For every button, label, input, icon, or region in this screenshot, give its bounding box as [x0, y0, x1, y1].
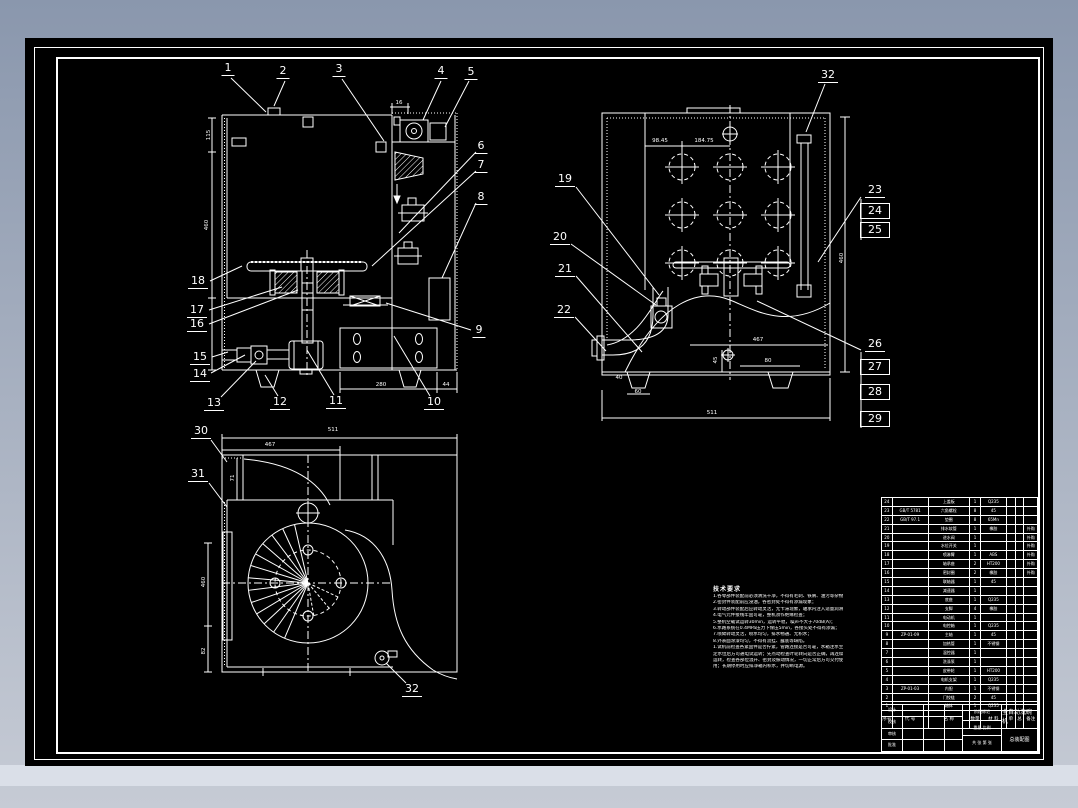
bom-cell-no: 14 [882, 587, 893, 595]
bom-cell-no: 16 [882, 569, 893, 577]
bom-cell-w1 [1007, 534, 1016, 542]
bom-cell-rem [1024, 649, 1037, 657]
parts-list-row: 14减速器1 [882, 587, 1037, 596]
parts-list-row: 22GB/T 97.1垫圈865Mn [882, 516, 1037, 525]
bom-cell-mat [981, 658, 1007, 666]
bom-cell-rem: 外购 [1024, 560, 1037, 568]
bom-cell-name: 底座 [929, 596, 971, 604]
title-block-cell: 校核 [882, 717, 903, 728]
bom-cell-rem: 外购 [1024, 542, 1037, 550]
callout-10: 10 [424, 396, 444, 410]
bom-cell-no: 24 [882, 498, 893, 506]
title-block-cell: 设计 [882, 705, 903, 716]
bom-cell-w1 [1007, 560, 1016, 568]
bom-cell-no: 21 [882, 525, 893, 533]
dimension-text: 98.45 [652, 138, 668, 144]
bom-cell-mat: Q235 [981, 498, 1007, 506]
parts-list-row: 12支脚4橡胶 [882, 605, 1037, 614]
front-view [208, 103, 457, 393]
leader-line-19 [576, 187, 659, 295]
dimension-text: 511 [328, 427, 339, 433]
title-block-row: 批准 [882, 740, 962, 751]
leader-line-30 [211, 440, 227, 462]
dimension-text: 16 [396, 100, 403, 106]
leader-line-11 [307, 350, 334, 395]
leader-line-5 [445, 81, 469, 127]
bom-cell-qty: 1 [970, 534, 981, 542]
bom-cell-w1 [1007, 587, 1016, 595]
callout-22: 22 [554, 304, 574, 318]
bom-cell-no: 19 [882, 542, 893, 550]
bom-cell-code: GB/T 5781 [893, 507, 929, 515]
bom-cell-w2 [1016, 498, 1025, 506]
bom-cell-qty: 8 [970, 507, 981, 515]
callout-20: 20 [550, 231, 570, 245]
leader-line-3 [342, 79, 384, 141]
bom-cell-no: 11 [882, 614, 893, 622]
bom-cell-name: 排水软管 [929, 525, 971, 533]
bom-cell-mat: ABS [981, 551, 1007, 559]
dimension-text: 115 [206, 130, 212, 141]
bom-cell-code [893, 658, 929, 666]
title-block-row: 设计 [882, 705, 962, 717]
bom-cell-rem [1024, 587, 1037, 595]
bom-cell-rem [1024, 676, 1037, 684]
bom-cell-w2 [1016, 605, 1025, 613]
bom-cell-code [893, 649, 929, 657]
leader-line-4 [423, 81, 441, 120]
bom-cell-rem: 外购 [1024, 551, 1037, 559]
bom-cell-w1 [1007, 542, 1016, 550]
bom-cell-mat [981, 542, 1007, 550]
bom-cell-qty: 1 [970, 551, 981, 559]
bom-cell-code [893, 605, 929, 613]
callout-31: 31 [188, 468, 208, 482]
bom-cell-w1 [1007, 516, 1016, 524]
parts-list-table: 24上盖板1Q23523GB/T 5781六角螺栓84522GB/T 97.1垫… [881, 497, 1038, 729]
bom-cell-mat: 45 [981, 631, 1007, 639]
dimension-text: 460 [201, 577, 207, 588]
bom-cell-w1 [1007, 676, 1016, 684]
bom-cell-code [893, 694, 929, 702]
dimension-text: 60 [635, 389, 642, 395]
callout-23: 23 [865, 184, 885, 198]
leader-line-32 [386, 663, 406, 683]
bom-cell-no: 12 [882, 605, 893, 613]
bom-cell-no: 22 [882, 516, 893, 524]
bom-cell-qty: 2 [970, 694, 981, 702]
bom-cell-w2 [1016, 578, 1025, 586]
title-block-cell [945, 717, 965, 728]
dimension-text: 467 [753, 337, 764, 343]
side-view [592, 105, 861, 428]
callout-3: 3 [333, 63, 346, 77]
bom-cell-rem: 外购 [1024, 534, 1037, 542]
bom-cell-code [893, 596, 929, 604]
bom-cell-w1 [1007, 605, 1016, 613]
bom-cell-code [893, 578, 929, 586]
bom-cell-code [893, 587, 929, 595]
bom-cell-name: 电机支架 [929, 676, 971, 684]
title-block-middle: 阶段标记 重量 比例 共 张 第 张 [963, 705, 1002, 751]
title-block-name-area: 全自动洗碗机 总装配图 [1002, 705, 1037, 751]
callout-19: 19 [555, 173, 575, 187]
bom-cell-rem [1024, 694, 1037, 702]
callout-9: 9 [473, 324, 486, 338]
bom-cell-w1 [1007, 667, 1016, 675]
title-block-cell [924, 729, 945, 740]
leader-line-31 [209, 483, 227, 507]
parts-list-row: 9ZP-01-09主轴145 [882, 631, 1037, 640]
title-block: 设计校核审核批准 阶段标记 重量 比例 共 张 第 张 全自动洗碗机 总装配图 [881, 704, 1038, 752]
callout-7: 7 [475, 159, 488, 173]
title-block-cell [945, 729, 965, 740]
bom-cell-w2 [1016, 667, 1025, 675]
bom-cell-mat: 橡胶 [981, 525, 1007, 533]
bom-cell-qty: 1 [970, 525, 981, 533]
bom-cell-qty: 4 [970, 605, 981, 613]
parts-list-row: 23GB/T 5781六角螺栓845 [882, 507, 1037, 516]
bom-cell-qty: 1 [970, 498, 981, 506]
bom-cell-name: 联轴器 [929, 578, 971, 586]
bom-cell-name: 喷淋臂 [929, 551, 971, 559]
bom-cell-no: 4 [882, 676, 893, 684]
parts-list-row: 3ZP-01-03内胆1不锈钢 [882, 685, 1037, 694]
parts-list-row: 20进水阀1外购 [882, 534, 1037, 543]
title-block-cell [924, 740, 945, 751]
bom-cell-code: ZP-01-09 [893, 631, 929, 639]
callout-12: 12 [270, 396, 290, 410]
bom-cell-w1 [1007, 685, 1016, 693]
parts-list-row: 15联轴器145 [882, 578, 1037, 587]
bom-cell-qty: 8 [970, 516, 981, 524]
parts-list-row: 21排水软管1橡胶外购 [882, 525, 1037, 534]
bom-cell-code [893, 667, 929, 675]
bom-cell-name: 垫圈 [929, 516, 971, 524]
bom-cell-rem [1024, 498, 1037, 506]
bom-cell-rem: 外购 [1024, 569, 1037, 577]
callout-14: 14 [190, 368, 210, 382]
dimension-text: 280 [376, 382, 387, 388]
drawing-name-line1: 全自动洗碗机 [1002, 705, 1037, 729]
bom-cell-name: 密封圈 [929, 569, 971, 577]
technical-notes: 技术要求 1.各零部件装配前必须清洗干净，不得有毛刺、铁屑、油污等杂物；2.密封… [713, 584, 843, 696]
notes-line: 用；长期停用时应排净箱内积水，并切断电源。 [713, 664, 843, 670]
bom-cell-name: 洗涤泵 [929, 658, 971, 666]
parts-list-row: 17轴承座2HT200外购 [882, 560, 1037, 569]
bom-cell-no: 8 [882, 640, 893, 648]
callout-21: 21 [555, 263, 575, 277]
callout-24: 24 [860, 203, 890, 219]
bom-cell-no: 17 [882, 560, 893, 568]
callout-4: 4 [435, 65, 448, 79]
bom-cell-qty: 1 [970, 685, 981, 693]
bom-cell-name: 电动机 [929, 614, 971, 622]
bom-cell-w1 [1007, 658, 1016, 666]
title-block-cell [945, 740, 965, 751]
bom-cell-no: 20 [882, 534, 893, 542]
callout-30: 30 [191, 425, 211, 439]
bom-cell-w2 [1016, 622, 1025, 630]
bom-cell-rem [1024, 614, 1037, 622]
title-block-cell [903, 729, 924, 740]
weight-scale-labels: 重量 比例 [963, 721, 1001, 737]
bom-cell-w2 [1016, 560, 1025, 568]
bom-cell-w2 [1016, 525, 1025, 533]
dimension-text: 184.75 [694, 138, 713, 144]
dimension-text: 82 [201, 648, 207, 655]
bom-cell-rem [1024, 605, 1037, 613]
title-block-cell [924, 717, 945, 728]
leader-line-2 [274, 81, 285, 106]
bom-cell-name: 门铰链 [929, 694, 971, 702]
callout-2: 2 [277, 65, 290, 79]
bom-cell-qty: 1 [970, 676, 981, 684]
bom-cell-qty: 1 [970, 658, 981, 666]
bom-cell-no: 7 [882, 649, 893, 657]
bom-cell-code [893, 534, 929, 542]
bom-cell-name: 内胆 [929, 685, 971, 693]
bom-cell-mat: 45 [981, 578, 1007, 586]
bom-cell-w2 [1016, 596, 1025, 604]
bom-cell-w1 [1007, 596, 1016, 604]
dimension-text: 80 [765, 358, 772, 364]
bom-cell-mat: 45 [981, 694, 1007, 702]
bom-cell-rem [1024, 685, 1037, 693]
title-block-row: 校核 [882, 717, 962, 729]
bom-cell-rem [1024, 596, 1037, 604]
bom-cell-mat: 45 [981, 507, 1007, 515]
parts-list-row: 13底座1Q235 [882, 596, 1037, 605]
bom-cell-mat: HT200 [981, 560, 1007, 568]
bom-cell-w2 [1016, 694, 1025, 702]
bom-cell-w2 [1016, 685, 1025, 693]
bom-cell-mat: 橡胶 [981, 605, 1007, 613]
bom-cell-name: 轴承座 [929, 560, 971, 568]
callout-5: 5 [465, 66, 478, 80]
drawing-name-line2: 总装配图 [1002, 729, 1037, 752]
bom-cell-w2 [1016, 649, 1025, 657]
bom-cell-w1 [1007, 569, 1016, 577]
leader-line-32 [806, 84, 825, 132]
bom-cell-rem [1024, 516, 1037, 524]
dimension-text: 44 [443, 382, 450, 388]
bom-cell-w2 [1016, 631, 1025, 639]
parts-list-row: 6洗涤泵1 [882, 658, 1037, 667]
bom-cell-code [893, 525, 929, 533]
title-block-cell [903, 705, 924, 716]
bom-cell-name: 温控器 [929, 649, 971, 657]
bom-cell-mat: 橡胶 [981, 569, 1007, 577]
bom-cell-w2 [1016, 658, 1025, 666]
parts-list-row: 10电控箱1Q235 [882, 622, 1037, 631]
title-block-cell: 批准 [882, 740, 903, 751]
dimension-text: 45 [713, 357, 719, 364]
bom-cell-rem [1024, 667, 1037, 675]
title-block-signature-grid: 设计校核审核批准 [882, 705, 963, 751]
bom-cell-code [893, 640, 929, 648]
bom-cell-w1 [1007, 622, 1016, 630]
callout-32: 32 [402, 683, 422, 697]
bom-cell-w1 [1007, 649, 1016, 657]
bom-cell-code [893, 614, 929, 622]
callout-15: 15 [190, 351, 210, 365]
bom-cell-no: 3 [882, 685, 893, 693]
dimension-text: 467 [265, 442, 276, 448]
bom-cell-qty: 1 [970, 614, 981, 622]
bom-cell-w1 [1007, 694, 1016, 702]
bom-cell-mat: Q235 [981, 676, 1007, 684]
bom-cell-code: ZP-01-03 [893, 685, 929, 693]
bom-cell-w1 [1007, 507, 1016, 515]
bom-cell-qty: 1 [970, 649, 981, 657]
bom-cell-qty: 1 [970, 640, 981, 648]
top-view [204, 434, 457, 679]
parts-list-row: 2门铰链245 [882, 694, 1037, 703]
bom-cell-code [893, 560, 929, 568]
bom-cell-qty: 1 [970, 542, 981, 550]
bom-cell-mat: 不锈钢 [981, 685, 1007, 693]
bom-cell-rem [1024, 507, 1037, 515]
bom-cell-w2 [1016, 587, 1025, 595]
bom-cell-name: 皮带轮 [929, 667, 971, 675]
callout-6: 6 [475, 140, 488, 154]
callout-29: 29 [860, 411, 890, 427]
callout-18: 18 [188, 275, 208, 289]
bom-cell-qty: 1 [970, 596, 981, 604]
dimension-text: 511 [707, 410, 718, 416]
parts-list-row: 11电动机1 [882, 614, 1037, 623]
title-block-cell: 审核 [882, 729, 903, 740]
callout-32: 32 [818, 69, 838, 83]
callout-13: 13 [204, 397, 224, 411]
parts-list-row: 19水位开关1外购 [882, 542, 1037, 551]
parts-list-row: 16密封圈2橡胶外购 [882, 569, 1037, 578]
bom-cell-no: 18 [882, 551, 893, 559]
parts-list-row: 4电机支架1Q235 [882, 676, 1037, 685]
dimension-text: 71 [230, 475, 236, 482]
bom-cell-w2 [1016, 551, 1025, 559]
bom-cell-no: 13 [882, 596, 893, 604]
notes-line: 1.试机前检查各紧固件是否拧紧，管路连接是否可靠，水箱注水至规 [713, 645, 843, 651]
bom-cell-mat [981, 534, 1007, 542]
bom-cell-mat: Q235 [981, 596, 1007, 604]
bom-cell-mat [981, 614, 1007, 622]
title-block-row: 审核 [882, 729, 962, 741]
bom-cell-w2 [1016, 534, 1025, 542]
callout-11: 11 [326, 395, 346, 409]
title-block-cell [903, 717, 924, 728]
bom-cell-no: 2 [882, 694, 893, 702]
sheet-count-label: 共 张 第 张 [963, 736, 1001, 751]
bom-cell-name: 上盖板 [929, 498, 971, 506]
dimension-text: 460 [204, 220, 210, 231]
bom-cell-mat: HT200 [981, 667, 1007, 675]
bom-cell-qty: 1 [970, 622, 981, 630]
bom-cell-rem [1024, 658, 1037, 666]
bom-cell-mat: 不锈钢 [981, 640, 1007, 648]
parts-list-row: 18喷淋臂1ABS外购 [882, 551, 1037, 560]
leader-line-22 [575, 317, 606, 351]
bom-cell-no: 6 [882, 658, 893, 666]
bom-cell-mat [981, 587, 1007, 595]
bom-cell-no: 5 [882, 667, 893, 675]
bom-cell-name: 电控箱 [929, 622, 971, 630]
bom-cell-no: 15 [882, 578, 893, 586]
bom-cell-w2 [1016, 676, 1025, 684]
bom-cell-name: 主轴 [929, 631, 971, 639]
parts-list-row: 8加热管1不锈钢 [882, 640, 1037, 649]
bom-cell-qty: 1 [970, 587, 981, 595]
callout-25: 25 [860, 222, 890, 238]
bom-cell-name: 加热管 [929, 640, 971, 648]
bom-cell-no: 23 [882, 507, 893, 515]
bom-cell-no: 9 [882, 631, 893, 639]
callout-8: 8 [475, 191, 488, 205]
bom-cell-mat [981, 649, 1007, 657]
callout-28: 28 [860, 384, 890, 400]
bom-cell-code [893, 498, 929, 506]
bom-cell-no: 10 [882, 622, 893, 630]
leader-line-15 [212, 352, 228, 357]
bom-cell-w2 [1016, 542, 1025, 550]
bom-cell-qty: 1 [970, 631, 981, 639]
notes-title: 技术要求 [713, 584, 843, 593]
dimension-text: 460 [839, 253, 845, 264]
leader-line-8 [442, 203, 476, 278]
title-block-cell [945, 705, 965, 716]
bom-cell-rem [1024, 640, 1037, 648]
bom-cell-w2 [1016, 569, 1025, 577]
bom-cell-code [893, 542, 929, 550]
leader-line-7 [372, 171, 476, 266]
callout-26: 26 [865, 338, 885, 352]
leader-line-18 [210, 266, 242, 281]
bom-cell-name: 减速器 [929, 587, 971, 595]
bom-cell-w1 [1007, 631, 1016, 639]
bom-cell-w1 [1007, 525, 1016, 533]
bom-cell-qty: 2 [970, 569, 981, 577]
bom-cell-w2 [1016, 507, 1025, 515]
dimension-text: 40 [616, 375, 623, 381]
bom-cell-name: 六角螺栓 [929, 507, 971, 515]
bom-cell-code [893, 551, 929, 559]
bom-cell-w1 [1007, 640, 1016, 648]
bom-cell-qty: 1 [970, 578, 981, 586]
parts-list-row: 7温控器1 [882, 649, 1037, 658]
bom-cell-name: 水位开关 [929, 542, 971, 550]
bom-cell-code [893, 569, 929, 577]
bom-cell-qty: 1 [970, 667, 981, 675]
leader-line-12 [265, 375, 278, 396]
callout-17: 17 [187, 304, 207, 318]
bom-cell-code [893, 622, 929, 630]
parts-list-row: 24上盖板1Q235 [882, 498, 1037, 507]
bom-cell-w1 [1007, 498, 1016, 506]
callout-27: 27 [860, 359, 890, 375]
bom-cell-rem: 外购 [1024, 525, 1037, 533]
title-block-cell [903, 740, 924, 751]
callout-16: 16 [187, 318, 207, 332]
callout-1: 1 [222, 62, 235, 76]
bom-cell-w1 [1007, 578, 1016, 586]
bom-cell-rem [1024, 622, 1037, 630]
bom-cell-w1 [1007, 614, 1016, 622]
bom-cell-code [893, 676, 929, 684]
bom-cell-w2 [1016, 614, 1025, 622]
bom-cell-w1 [1007, 551, 1016, 559]
title-block-cell [924, 705, 945, 716]
